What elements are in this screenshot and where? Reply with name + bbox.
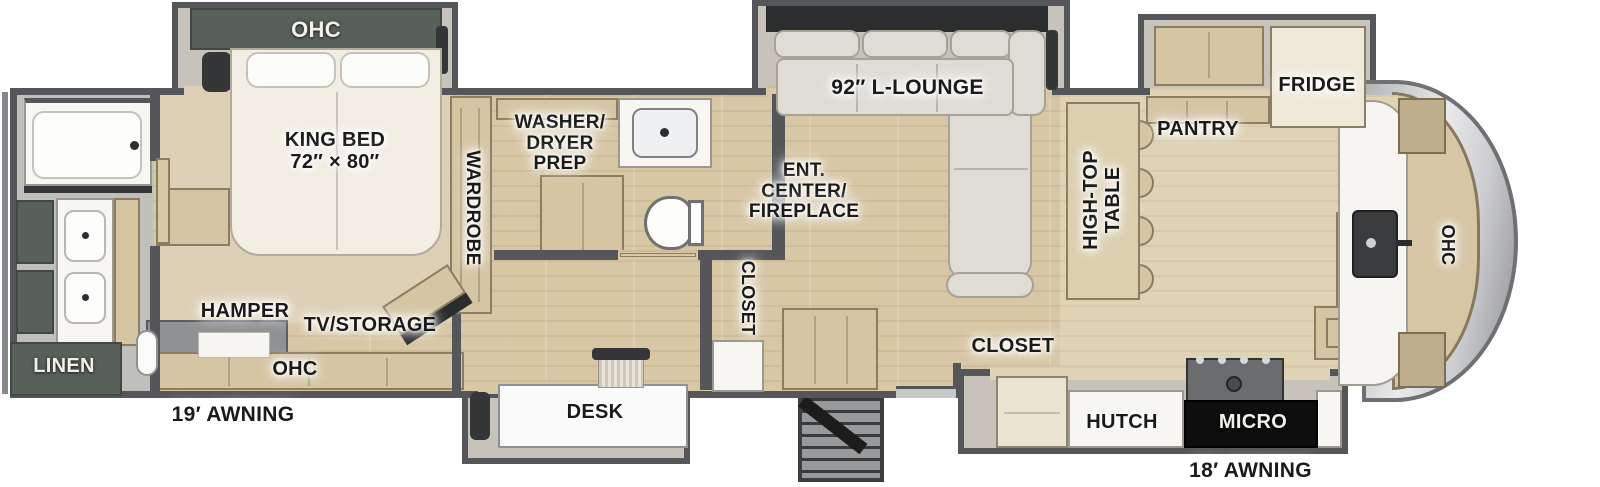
- counter-segment: [1316, 390, 1342, 448]
- toilet-tank: [688, 200, 704, 246]
- label-washer-dryer-prep: WASHER/ DRYER PREP: [498, 108, 622, 180]
- sofa-armrest: [946, 272, 1034, 298]
- shower-drain-icon: [130, 141, 139, 150]
- desk-chair-back: [592, 348, 650, 360]
- sofa-back-cushion: [950, 30, 1012, 58]
- floorplan: OHC KING BED 72″ × 80″ WARDROBE HAMPER T…: [0, 0, 1600, 487]
- label-closet-entry: CLOSET: [958, 334, 1068, 360]
- label-fridge: FRIDGE: [1260, 74, 1374, 98]
- bedroom-window-icon: [202, 52, 232, 92]
- hamper-bin: [136, 330, 158, 376]
- label-awning-right: 18′ AWNING: [1163, 458, 1338, 484]
- label-bedroom-ohc-base: OHC: [260, 357, 330, 383]
- vanity-sink-drain-icon: [82, 232, 89, 239]
- label-desk: DESK: [540, 400, 650, 426]
- lounge-back-wall: [766, 6, 1048, 32]
- pillow: [340, 52, 430, 88]
- wall-bath-bedroom: [150, 95, 160, 161]
- label-l-lounge: 92″ L-LOUNGE: [795, 76, 1020, 100]
- label-pantry: PANTRY: [1142, 118, 1254, 142]
- sofa-back-cushion: [774, 30, 860, 58]
- label-king-bed: KING BED 72″ × 80″: [235, 126, 435, 178]
- label-tv-storage: TV/STORAGE: [295, 314, 445, 338]
- label-closet-mid: CLOSET: [736, 248, 758, 348]
- label-bedroom-ohc: OHC: [256, 17, 376, 43]
- mirror-cabinet: [16, 200, 54, 264]
- pantry-slide-cabinet: [1154, 26, 1264, 86]
- label-micro: MICRO: [1198, 410, 1308, 436]
- label-ent-center: ENT. CENTER/ FIREPLACE: [718, 152, 890, 232]
- label-linen: LINEN: [14, 354, 114, 380]
- shower: [24, 98, 152, 186]
- wd-cabinet: [540, 175, 624, 259]
- label-high-top-table: HIGH-TOP TABLE: [1079, 115, 1127, 285]
- entry-closet-cabinet: [996, 376, 1068, 448]
- bath-sink-drain-icon: [660, 128, 669, 137]
- label-wardrobe: WARDROBE: [460, 128, 484, 288]
- overhead-cabinet: [1398, 332, 1446, 388]
- desk-chair: [598, 358, 644, 388]
- lounge-window-icon: [1046, 30, 1058, 90]
- sofa-back-cushion: [862, 30, 948, 58]
- label-awning-left: 19′ AWNING: [148, 402, 318, 428]
- kitchen-sink-drain-icon: [1366, 238, 1376, 248]
- entry-door: [896, 386, 956, 398]
- vanity-side-cabinet: [114, 198, 140, 346]
- label-hutch: HUTCH: [1072, 410, 1172, 436]
- pillow: [246, 52, 336, 88]
- entry-cabinet-bank: [782, 308, 878, 390]
- rear-bumper: [2, 92, 8, 394]
- faucet-icon: [1396, 240, 1412, 246]
- mirror-cabinet: [16, 270, 54, 334]
- wall-hall-living: [700, 254, 712, 390]
- label-kitchen-ohc: OHC: [1435, 205, 1459, 285]
- toilet: [644, 196, 694, 250]
- label-hamper: HAMPER: [190, 300, 300, 324]
- pocket-door: [620, 253, 696, 257]
- range-cooktop: [1186, 358, 1284, 404]
- vanity-sink-drain-icon: [82, 294, 89, 301]
- media-cabinet-inset: [198, 332, 270, 358]
- bedroom-door: [156, 158, 170, 244]
- desk-window-icon: [470, 392, 490, 440]
- overhead-cabinet: [1398, 98, 1446, 154]
- shower-pan: [32, 111, 142, 179]
- shower-glass: [24, 186, 152, 193]
